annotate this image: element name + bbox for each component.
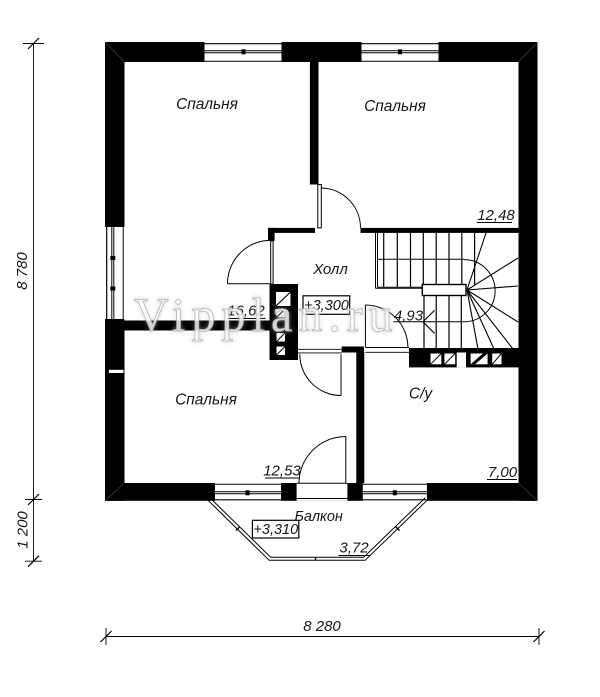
svg-text:Спальня: Спальня	[176, 96, 238, 113]
svg-text:8 280: 8 280	[303, 618, 341, 635]
svg-text:+3,310: +3,310	[253, 522, 298, 538]
svg-text:12,53: 12,53	[263, 463, 301, 480]
svg-text:Спальня: Спальня	[364, 98, 426, 115]
svg-text:Балкон: Балкон	[294, 509, 342, 525]
svg-text:Холл: Холл	[312, 261, 348, 278]
svg-text:С/у: С/у	[409, 386, 434, 403]
svg-text:Vipplan.ru: Vipplan.ru	[134, 289, 399, 342]
svg-text:8 780: 8 780	[14, 252, 31, 290]
svg-text:7,00: 7,00	[488, 464, 518, 481]
svg-text:12,48: 12,48	[477, 207, 515, 224]
svg-text:1 200: 1 200	[15, 511, 32, 549]
svg-text:Спальня: Спальня	[175, 392, 237, 409]
svg-text:3,72: 3,72	[339, 540, 369, 557]
